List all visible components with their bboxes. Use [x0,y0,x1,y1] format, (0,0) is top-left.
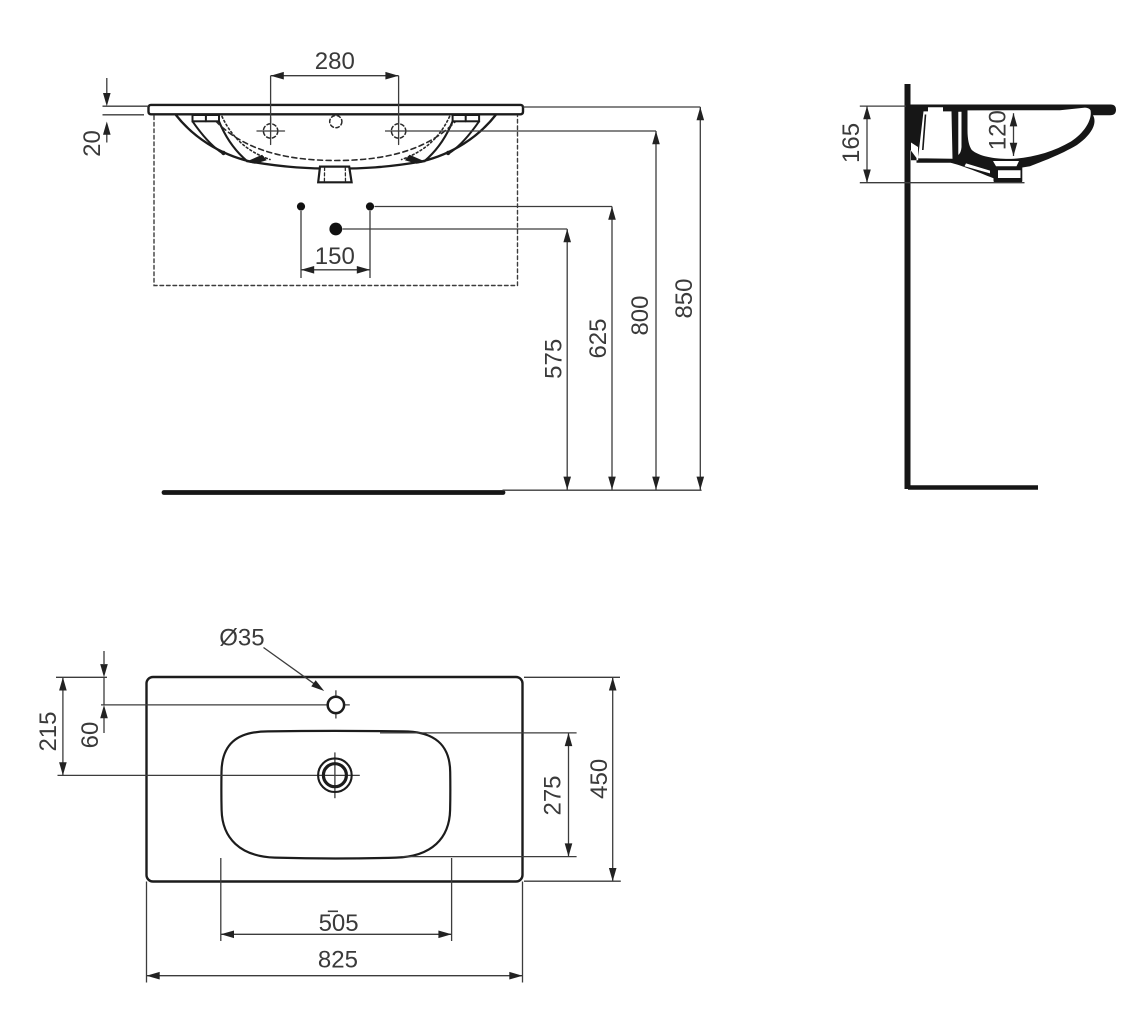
svg-text:850: 850 [671,278,698,318]
svg-text:575: 575 [541,339,568,379]
svg-text:825: 825 [318,946,358,973]
svg-text:625: 625 [585,318,612,358]
svg-text:280: 280 [315,48,355,75]
svg-text:120: 120 [985,110,1012,150]
svg-text:20: 20 [79,130,106,157]
svg-text:Ø35: Ø35 [219,625,264,652]
svg-text:800: 800 [627,295,654,335]
svg-text:505: 505 [319,910,359,937]
svg-text:215: 215 [35,711,62,751]
svg-text:60: 60 [77,722,104,749]
svg-text:275: 275 [539,775,566,815]
svg-text:450: 450 [586,759,613,799]
svg-text:165: 165 [838,123,865,163]
svg-text:150: 150 [315,243,355,270]
